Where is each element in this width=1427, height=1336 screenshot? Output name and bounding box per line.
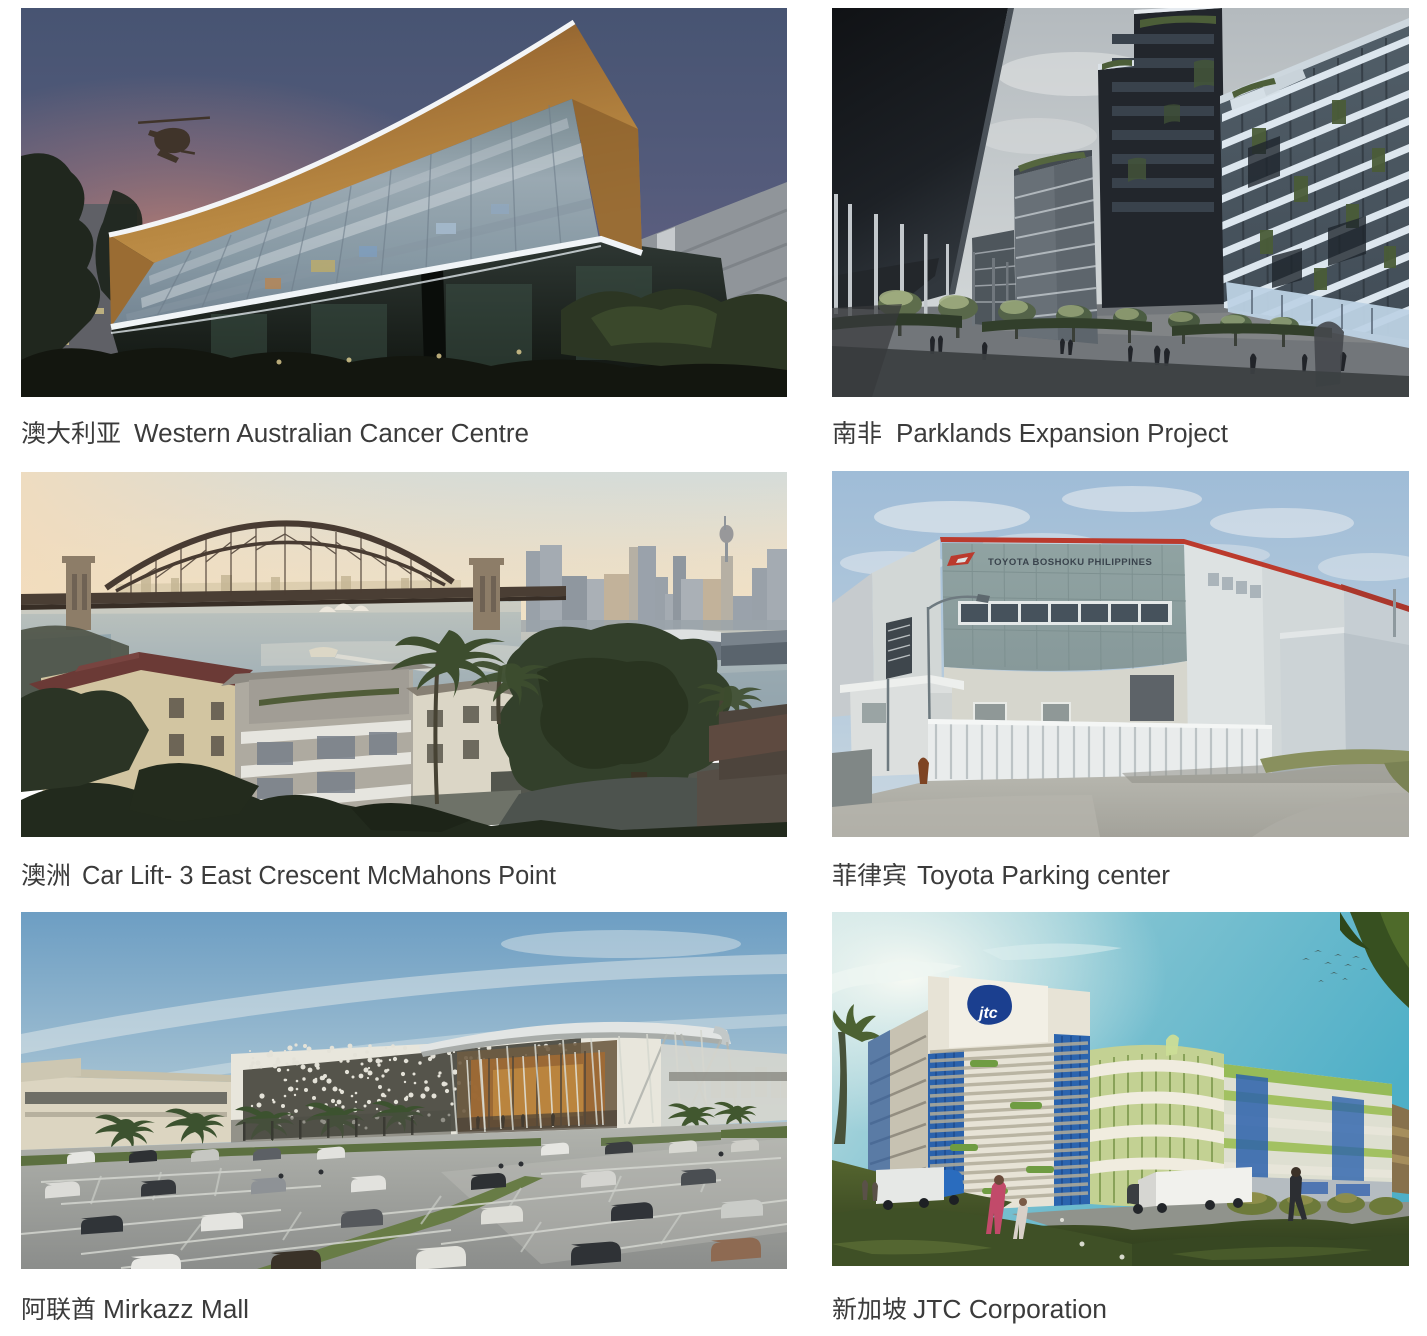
svg-text:Parklands Expansion Project: Parklands Expansion Project [896,420,1228,448]
svg-text:Toyota Parking center: Toyota Parking center [917,862,1171,890]
svg-text:Western Australian Cancer Cent: Western Australian Cancer Centre [134,420,529,448]
svg-text:Car Lift- 3 East Crescent McMa: Car Lift- 3 East Crescent McMahons Point [82,862,556,890]
svg-text:jtc: jtc [977,1005,998,1022]
svg-text:TOYOTA BOSHOKU PHILIPPINES: TOYOTA BOSHOKU PHILIPPINES [988,557,1152,568]
svg-text:Mirkazz Mall: Mirkazz Mall [103,1296,249,1324]
svg-text:JTC Corporation: JTC Corporation [913,1296,1107,1324]
